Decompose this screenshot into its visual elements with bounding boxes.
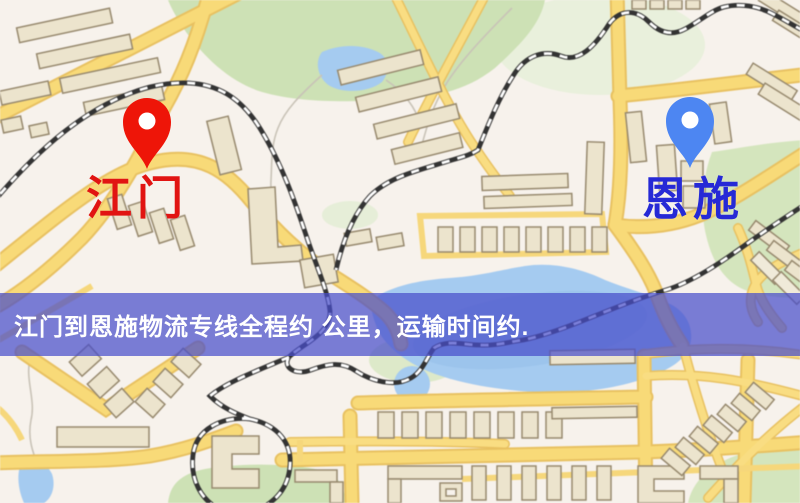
map-screenshot: 江门 恩施 江门到恩施物流专线全程约 公里，运输时间约. (0, 0, 800, 503)
enshi-label: 恩施 (642, 177, 744, 223)
route-info-banner: 江门到恩施物流专线全程约 公里，运输时间约. (0, 293, 800, 356)
map-canvas[interactable] (0, 0, 800, 503)
route-info-text: 江门到恩施物流专线全程约 公里，运输时间约. (0, 307, 529, 342)
jiangmen-label: 江门 (86, 176, 188, 222)
